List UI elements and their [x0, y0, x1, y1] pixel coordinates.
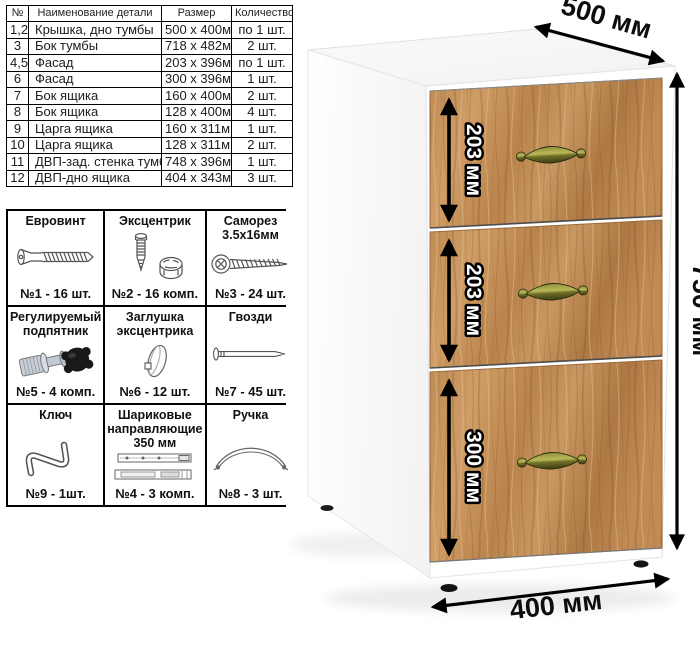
dim-drawer3-label: 300 мм: [462, 431, 485, 503]
cabinet-foot: [441, 584, 458, 592]
cabinet-foot: [321, 505, 334, 511]
dim-drawer2-label: 203 мм: [462, 264, 485, 336]
cabinet-foot: [634, 560, 649, 567]
dim-height-label: 750 мм: [687, 264, 700, 357]
cabinet-left-face: [308, 50, 430, 578]
dim-drawer1-label: 203 мм: [462, 124, 485, 196]
assembly-sheet: № Наименование детали Размер Количество …: [0, 0, 700, 648]
cabinet-drawing: 500 мм 750 мм 400 мм 203 мм 203 мм 300 м…: [0, 0, 700, 648]
